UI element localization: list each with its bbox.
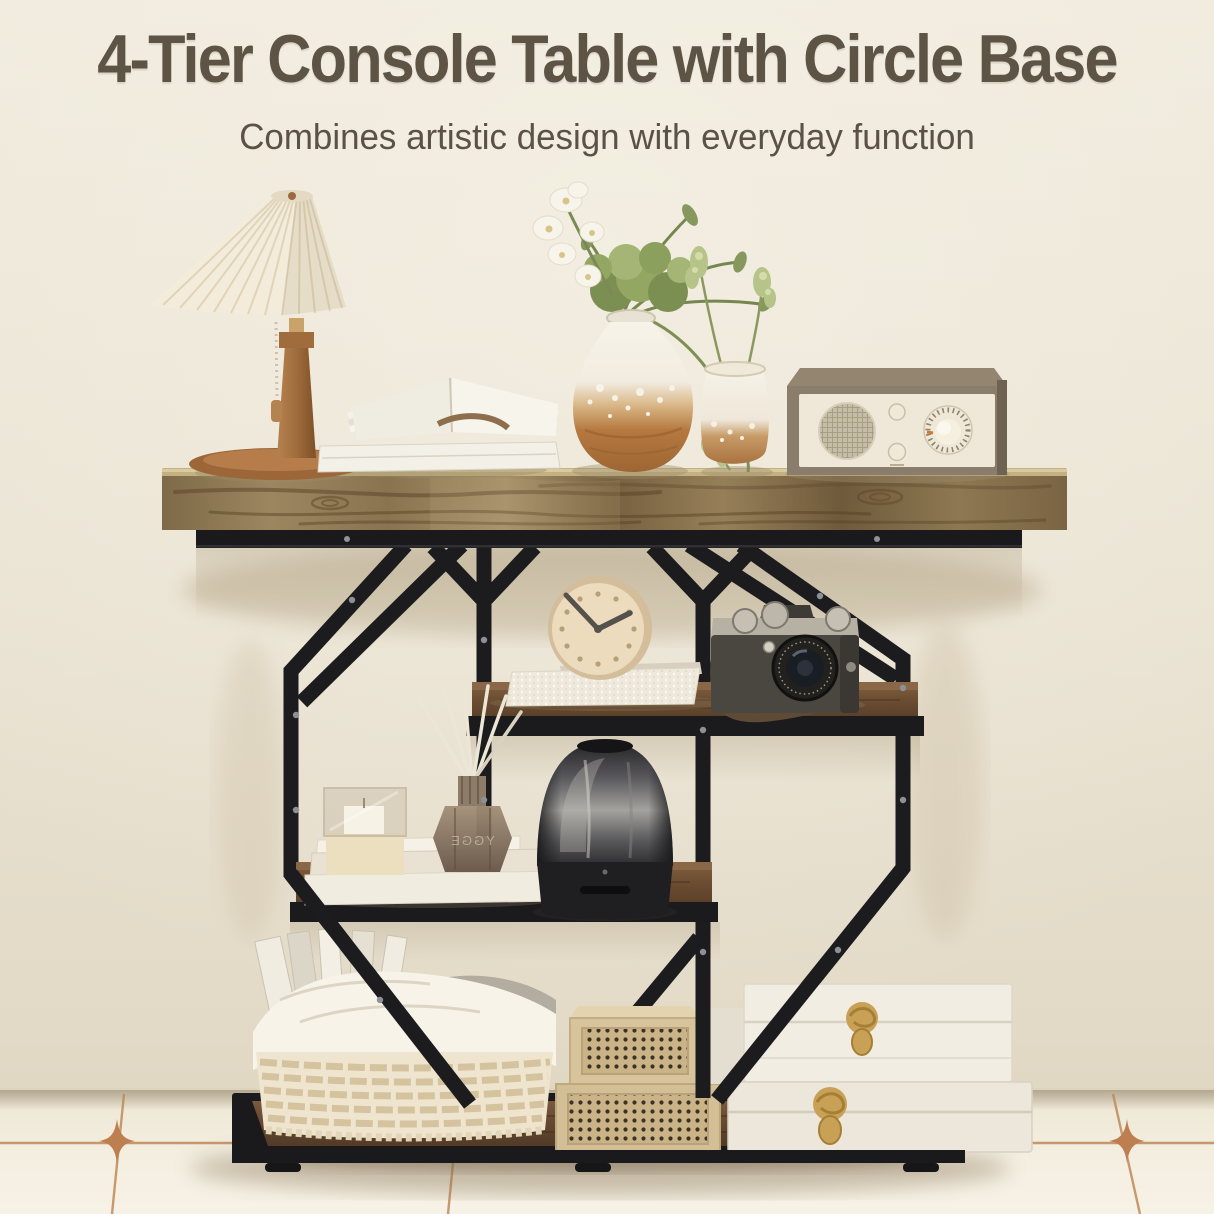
bottom-leather-box: [728, 1082, 1032, 1152]
desk-clock: [548, 576, 652, 680]
glass-candle-box: [324, 788, 406, 836]
headline-title: 4-Tier Console Table with Circle Base: [61, 22, 1154, 97]
vintage-radio: [787, 368, 1007, 475]
small-vase-body: [701, 366, 769, 464]
rattan-crates: [556, 1006, 720, 1152]
radio-knob-top: [889, 404, 905, 420]
radio-knob-bottom: [889, 444, 906, 461]
cream-box: [326, 833, 404, 875]
woven-basket: [253, 971, 556, 1138]
base-front-lip: [232, 1150, 965, 1163]
camera-lens: [773, 636, 837, 700]
diffuser-label: YGGE: [449, 833, 495, 848]
retro-camera: [711, 602, 859, 718]
top-leather-box: [744, 984, 1012, 1082]
headline-subtitle: Combines artistic design with everyday f…: [18, 117, 1196, 157]
marketing-image: YGGE: [0, 0, 1214, 1214]
radio-speaker-grille: [819, 403, 875, 459]
radio-tuning-dial: [924, 406, 972, 454]
product-scene: YGGE: [0, 0, 1214, 1214]
